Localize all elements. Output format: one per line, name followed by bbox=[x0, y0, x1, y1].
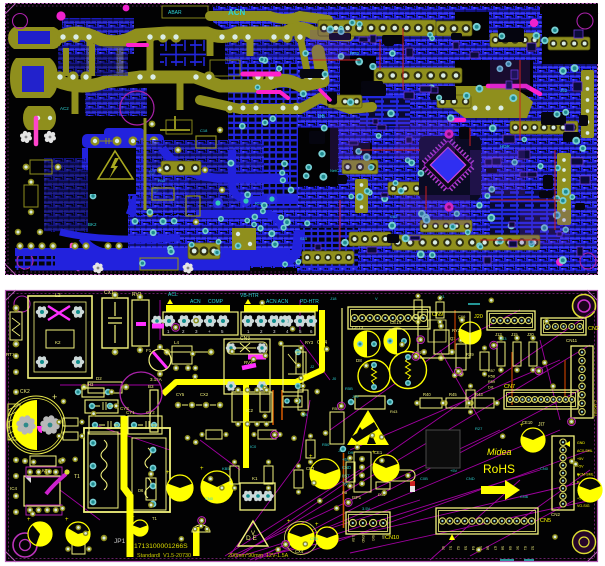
svg-text:CN2: CN2 bbox=[551, 512, 560, 517]
svg-text:JP1: JP1 bbox=[114, 538, 126, 545]
svg-text:CX2: CX2 bbox=[200, 392, 209, 397]
svg-text:GND: GND bbox=[361, 535, 365, 543]
svg-text:S4: S4 bbox=[471, 546, 475, 550]
svg-text:S0: S0 bbox=[441, 546, 445, 550]
svg-text:C0B: C0B bbox=[420, 476, 428, 481]
svg-text:H3: H3 bbox=[88, 382, 94, 387]
svg-text:CN7: CN7 bbox=[504, 384, 515, 390]
svg-text:J18: J18 bbox=[330, 296, 337, 301]
svg-text:200mm*90mm: 200mm*90mm bbox=[228, 553, 264, 559]
svg-text:R59: R59 bbox=[488, 380, 495, 384]
svg-text:CN9: CN9 bbox=[432, 312, 443, 318]
svg-text:S7: S7 bbox=[493, 546, 497, 550]
svg-text:+: + bbox=[166, 470, 170, 476]
svg-text:C18: C18 bbox=[200, 128, 208, 133]
svg-text:RG2: RG2 bbox=[350, 51, 360, 56]
svg-text:CK2: CK2 bbox=[20, 389, 30, 395]
svg-text:S1: S1 bbox=[523, 546, 527, 550]
svg-text:COMP: COMP bbox=[208, 299, 224, 305]
svg-text:J13: J13 bbox=[500, 336, 507, 341]
svg-text:+: + bbox=[52, 392, 57, 402]
svg-text:CND: CND bbox=[466, 476, 475, 481]
svg-text:R45: R45 bbox=[449, 392, 457, 397]
svg-text:IC4: IC4 bbox=[10, 486, 18, 491]
svg-text:S9: S9 bbox=[508, 546, 512, 550]
svg-text:AC2: AC2 bbox=[60, 106, 69, 111]
svg-text:VO-SIG: VO-SIG bbox=[577, 504, 590, 508]
svg-text:J52: J52 bbox=[560, 88, 568, 93]
svg-text:+: + bbox=[200, 466, 204, 472]
svg-text:D8: D8 bbox=[356, 358, 362, 363]
svg-text:ACL: ACL bbox=[168, 292, 178, 298]
svg-text:CN0: CN0 bbox=[540, 466, 549, 471]
svg-text:+: + bbox=[131, 515, 135, 521]
svg-text:Q4: Q4 bbox=[302, 412, 308, 417]
svg-text:3.5V: 3.5V bbox=[351, 535, 355, 543]
svg-text:CN2: CN2 bbox=[588, 326, 599, 332]
svg-text:+: + bbox=[577, 473, 581, 479]
svg-text:CN10: CN10 bbox=[385, 535, 399, 541]
svg-text:AC0-SML: AC0-SML bbox=[577, 449, 593, 453]
svg-text:IC3: IC3 bbox=[255, 201, 263, 206]
svg-text:NetC1: NetC1 bbox=[330, 168, 342, 173]
svg-text:R58: R58 bbox=[488, 375, 495, 379]
svg-text:R43: R43 bbox=[390, 409, 398, 414]
svg-text:+: + bbox=[27, 517, 31, 523]
svg-text:RY3: RY3 bbox=[452, 328, 461, 333]
svg-text:3.5V: 3.5V bbox=[362, 506, 371, 511]
svg-text:5V: 5V bbox=[381, 535, 385, 540]
svg-text:R5B: R5B bbox=[345, 386, 353, 391]
svg-text:S3: S3 bbox=[463, 546, 467, 550]
svg-text:J15: J15 bbox=[511, 332, 518, 337]
svg-text:RoHS: RoHS bbox=[483, 462, 515, 476]
svg-text:+5V: +5V bbox=[577, 457, 584, 461]
svg-text:CND: CND bbox=[342, 465, 351, 470]
svg-text:T1: T1 bbox=[74, 474, 80, 480]
svg-text:CN6: CN6 bbox=[520, 494, 529, 499]
svg-text:Midea: Midea bbox=[487, 447, 512, 457]
svg-text:+: + bbox=[287, 519, 291, 525]
svg-text:IC0: IC0 bbox=[250, 444, 257, 449]
svg-text:J20: J20 bbox=[527, 332, 534, 337]
svg-text:KB5: KB5 bbox=[222, 466, 230, 471]
svg-text:IC2: IC2 bbox=[246, 408, 254, 413]
svg-text:+: + bbox=[65, 517, 69, 523]
svg-text:Y1: Y1 bbox=[440, 294, 446, 299]
svg-text:DI1: DI1 bbox=[488, 386, 494, 390]
svg-text:D6: D6 bbox=[138, 488, 144, 493]
svg-text:D9: D9 bbox=[348, 450, 354, 455]
svg-text:CY5: CY5 bbox=[176, 392, 185, 397]
svg-text:S2: S2 bbox=[530, 546, 534, 550]
svg-text:K2: K2 bbox=[55, 340, 61, 345]
svg-text:PD-HTR: PD-HTR bbox=[300, 299, 319, 305]
svg-text:R50: R50 bbox=[322, 442, 330, 447]
svg-text:R27: R27 bbox=[475, 426, 483, 431]
svg-text:ISP1: ISP1 bbox=[352, 495, 362, 500]
svg-text:ACN: ACN bbox=[228, 8, 246, 17]
svg-text:R12: R12 bbox=[158, 178, 166, 183]
svg-text:SIG: SIG bbox=[371, 535, 375, 541]
svg-text:C52: C52 bbox=[390, 214, 398, 219]
svg-text:R8: R8 bbox=[342, 490, 348, 495]
svg-text:R43: R43 bbox=[475, 392, 483, 397]
svg-text:RY3: RY3 bbox=[305, 340, 314, 345]
svg-text:F1: F1 bbox=[146, 348, 152, 353]
svg-text:S8: S8 bbox=[501, 546, 505, 550]
svg-text:V: V bbox=[375, 296, 378, 301]
svg-text:ABAR: ABAR bbox=[168, 10, 182, 16]
svg-text:CS4: CS4 bbox=[310, 536, 319, 541]
svg-text:L4: L4 bbox=[174, 340, 180, 345]
svg-text:ACN ACN: ACN ACN bbox=[266, 299, 289, 305]
svg-text:1713100001266S: 1713100001266S bbox=[134, 543, 188, 550]
svg-text:BK2: BK2 bbox=[88, 222, 97, 227]
svg-text:V: V bbox=[251, 531, 255, 537]
svg-text:GND: GND bbox=[577, 441, 585, 445]
svg-text:HDR: HDR bbox=[500, 144, 510, 149]
svg-text:R40: R40 bbox=[423, 392, 431, 397]
svg-text:B3: B3 bbox=[148, 384, 154, 389]
svg-text:L2: L2 bbox=[55, 293, 61, 299]
svg-text:12V-1.5A: 12V-1.5A bbox=[266, 553, 289, 559]
svg-text:+: + bbox=[315, 522, 319, 528]
svg-text:+: + bbox=[208, 329, 211, 334]
svg-text:CX1: CX1 bbox=[104, 290, 114, 296]
svg-text:VB-HTR: VB-HTR bbox=[240, 293, 259, 299]
svg-text:S15: S15 bbox=[300, 236, 308, 241]
svg-text:+: + bbox=[309, 454, 313, 460]
svg-text:CN11: CN11 bbox=[566, 338, 578, 343]
svg-text:C-MD0B1: C-MD0B1 bbox=[593, 400, 597, 417]
svg-text:CE1: CE1 bbox=[374, 450, 383, 455]
svg-text:CE3: CE3 bbox=[306, 466, 315, 471]
svg-text:K1: K1 bbox=[252, 476, 258, 481]
svg-text:J20: J20 bbox=[474, 314, 483, 320]
svg-text:CY2: CY2 bbox=[146, 410, 155, 415]
svg-text:CX4: CX4 bbox=[295, 549, 304, 554]
svg-text:CY1: CY1 bbox=[126, 410, 135, 415]
svg-text:JI7: JI7 bbox=[538, 422, 545, 428]
svg-text:J10: J10 bbox=[352, 394, 359, 399]
svg-text:S6: S6 bbox=[486, 546, 490, 550]
svg-text:RV1: RV1 bbox=[132, 292, 142, 298]
svg-text:Standardl V1.5-20730: Standardl V1.5-20730 bbox=[137, 553, 191, 559]
svg-text:CN0: CN0 bbox=[205, 496, 214, 501]
svg-text:D2: D2 bbox=[96, 376, 102, 381]
svg-text:T1: T1 bbox=[152, 516, 158, 521]
svg-text:ACN: ACN bbox=[190, 299, 201, 305]
svg-text:CE10: CE10 bbox=[522, 420, 533, 425]
svg-text:S1: S1 bbox=[448, 546, 452, 550]
svg-text:DB: DB bbox=[318, 114, 326, 120]
svg-text:+5V: +5V bbox=[450, 468, 458, 473]
svg-text:CN5: CN5 bbox=[540, 518, 551, 524]
svg-text:S2: S2 bbox=[456, 546, 460, 550]
svg-text:S0: S0 bbox=[516, 546, 520, 550]
